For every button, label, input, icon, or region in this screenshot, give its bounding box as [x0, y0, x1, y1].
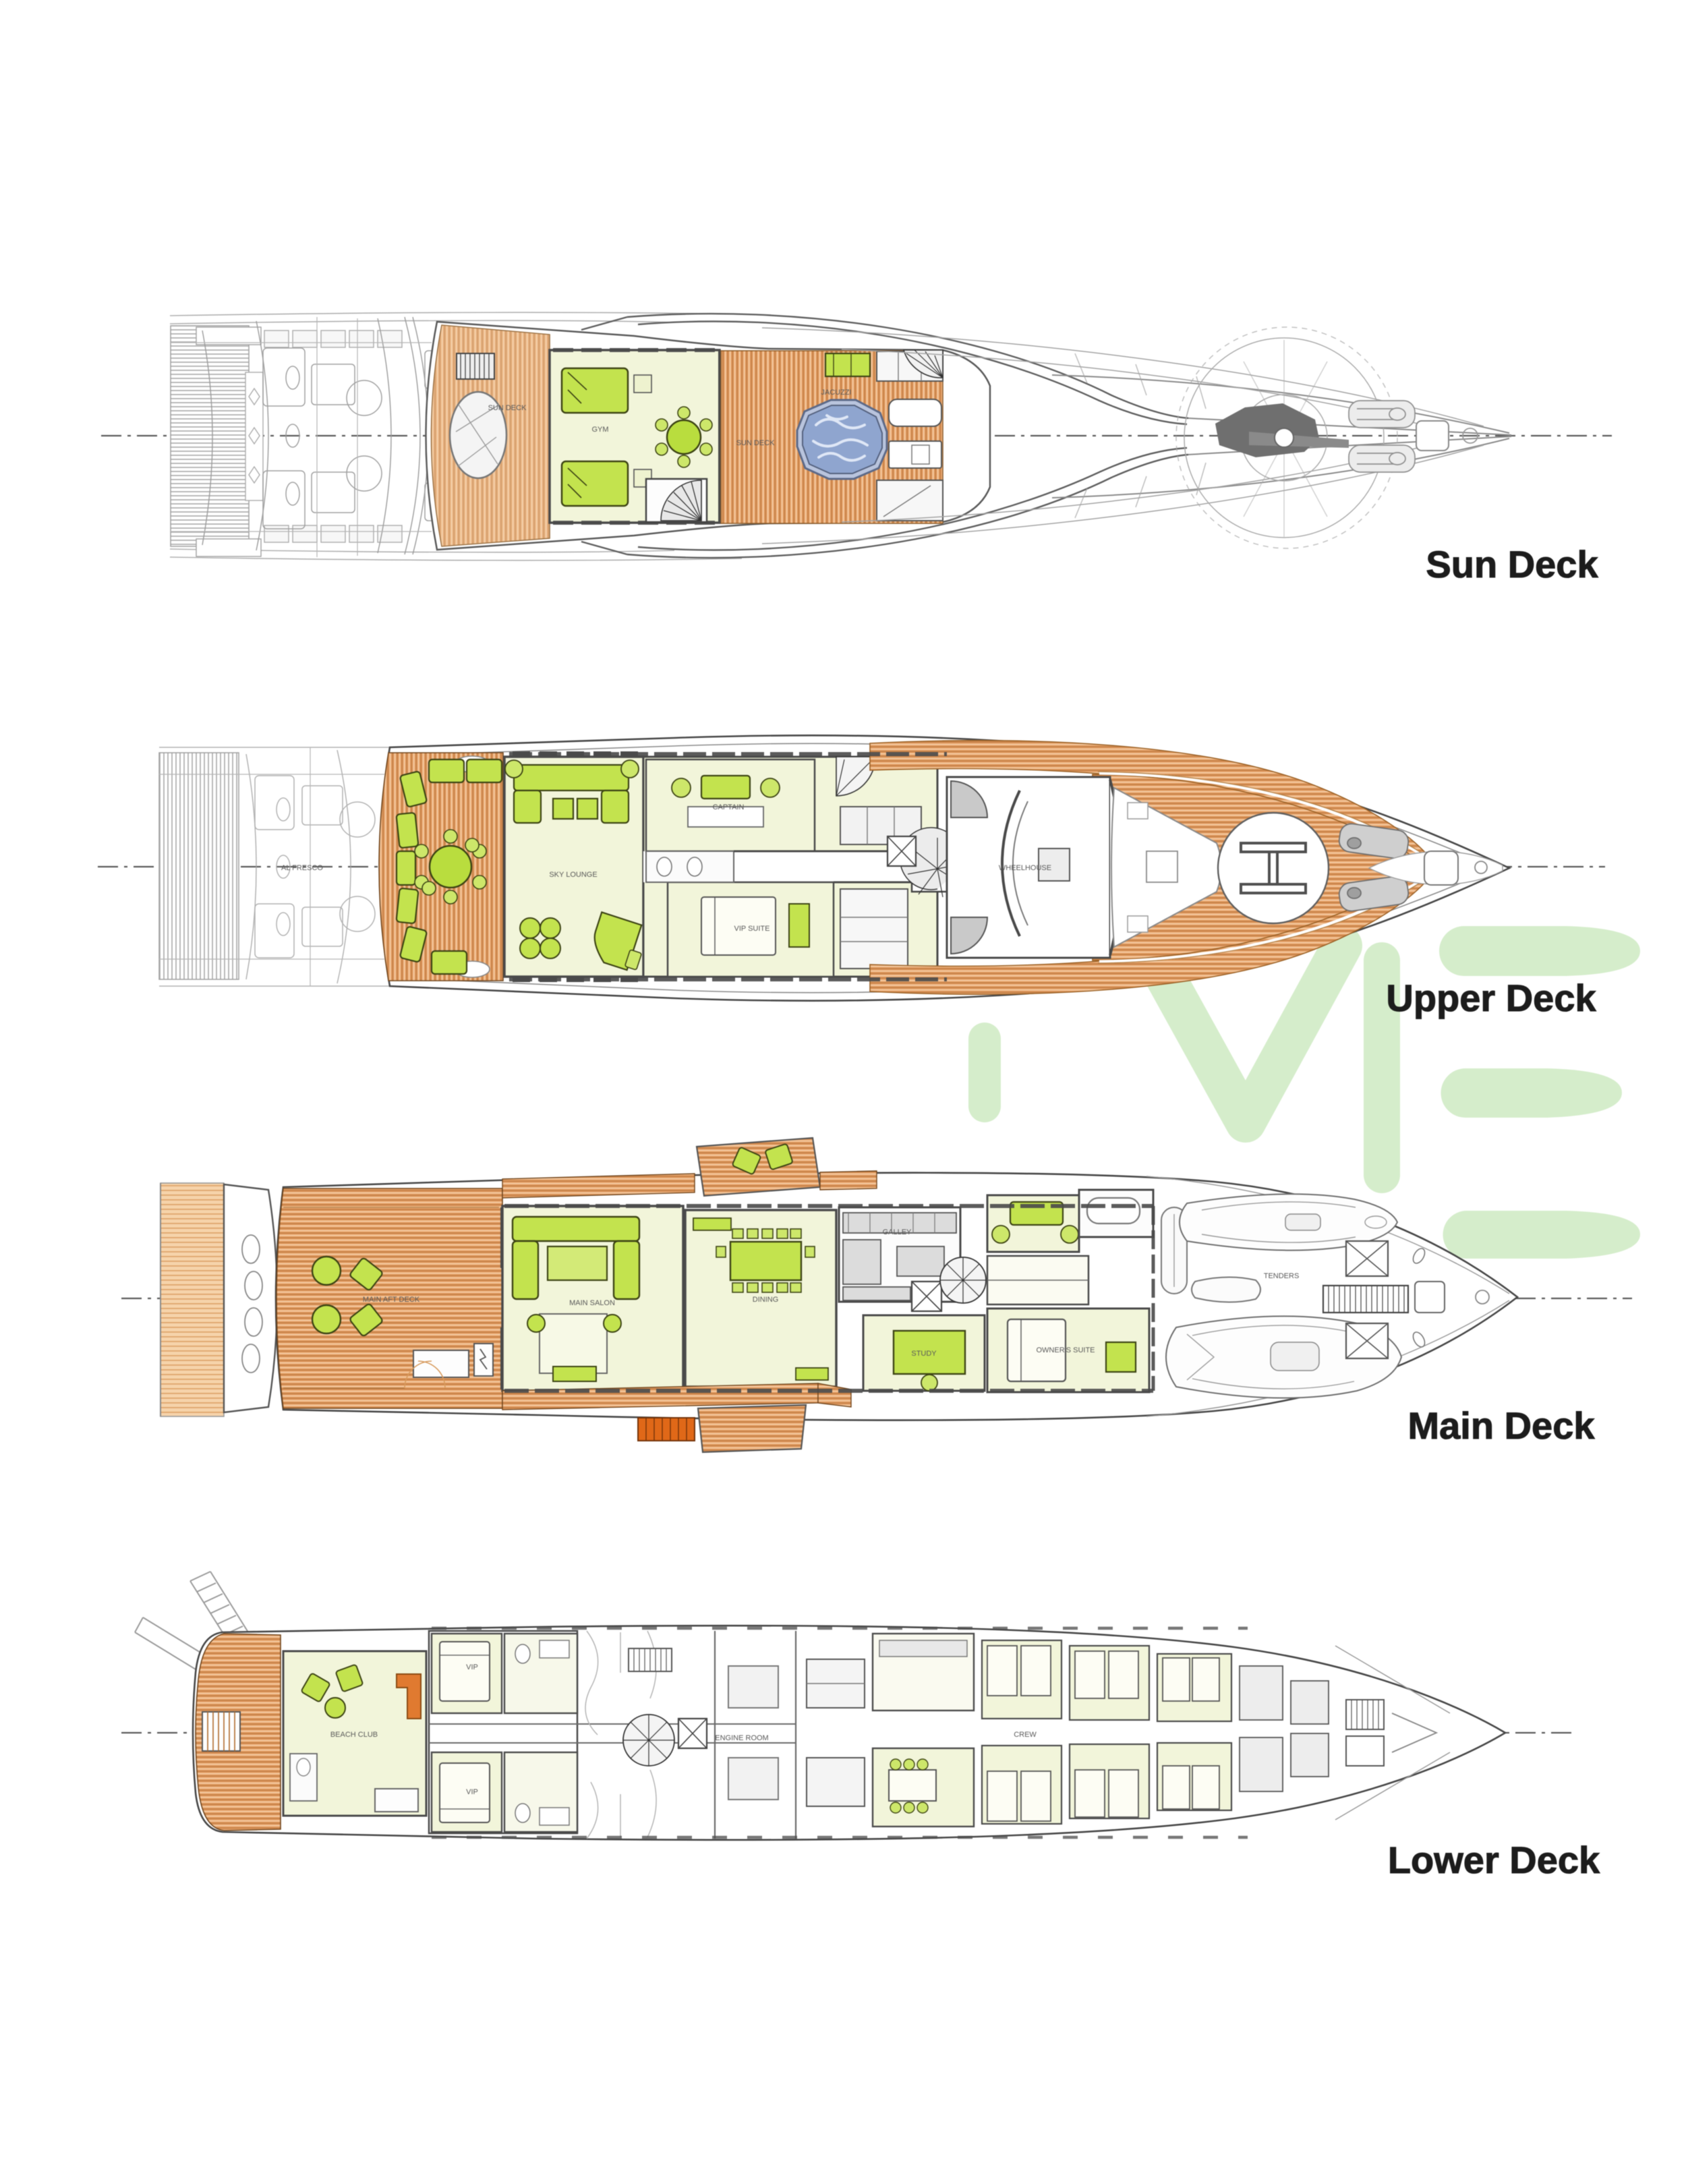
- svg-text:CAPTAIN: CAPTAIN: [713, 803, 745, 811]
- svg-text:CREW: CREW: [1014, 1731, 1037, 1739]
- svg-text:Main Deck: Main Deck: [1408, 1404, 1596, 1447]
- svg-text:OWNER'S SUITE: OWNER'S SUITE: [1036, 1346, 1095, 1354]
- svg-text:TENDERS: TENDERS: [1264, 1272, 1300, 1280]
- svg-text:GALLEY: GALLEY: [883, 1228, 912, 1236]
- svg-text:STUDY: STUDY: [911, 1350, 937, 1358]
- svg-text:Upper Deck: Upper Deck: [1386, 977, 1596, 1019]
- svg-text:JACUZZI: JACUZZI: [821, 389, 851, 397]
- svg-text:SKY LOUNGE: SKY LOUNGE: [549, 871, 597, 879]
- svg-text:Lower Deck: Lower Deck: [1388, 1839, 1600, 1881]
- svg-text:ENGINE ROOM: ENGINE ROOM: [715, 1734, 768, 1742]
- svg-text:GYM: GYM: [591, 426, 608, 434]
- svg-text:BEACH CLUB: BEACH CLUB: [330, 1731, 378, 1739]
- svg-text:Sun Deck: Sun Deck: [1426, 543, 1598, 585]
- svg-text:SUN DECK: SUN DECK: [488, 404, 527, 412]
- svg-text:DINING: DINING: [753, 1296, 779, 1304]
- svg-text:WHEELHOUSE: WHEELHOUSE: [999, 864, 1051, 872]
- svg-text:VIP: VIP: [466, 1663, 478, 1671]
- svg-text:MAIN AFT DECK: MAIN AFT DECK: [363, 1296, 420, 1304]
- svg-text:VIP SUITE: VIP SUITE: [734, 925, 770, 933]
- svg-text:VIP: VIP: [466, 1788, 478, 1796]
- svg-text:MAIN SALON: MAIN SALON: [569, 1299, 615, 1307]
- svg-text:SUN DECK: SUN DECK: [736, 439, 776, 447]
- svg-text:AL FRESCO: AL FRESCO: [281, 864, 323, 872]
